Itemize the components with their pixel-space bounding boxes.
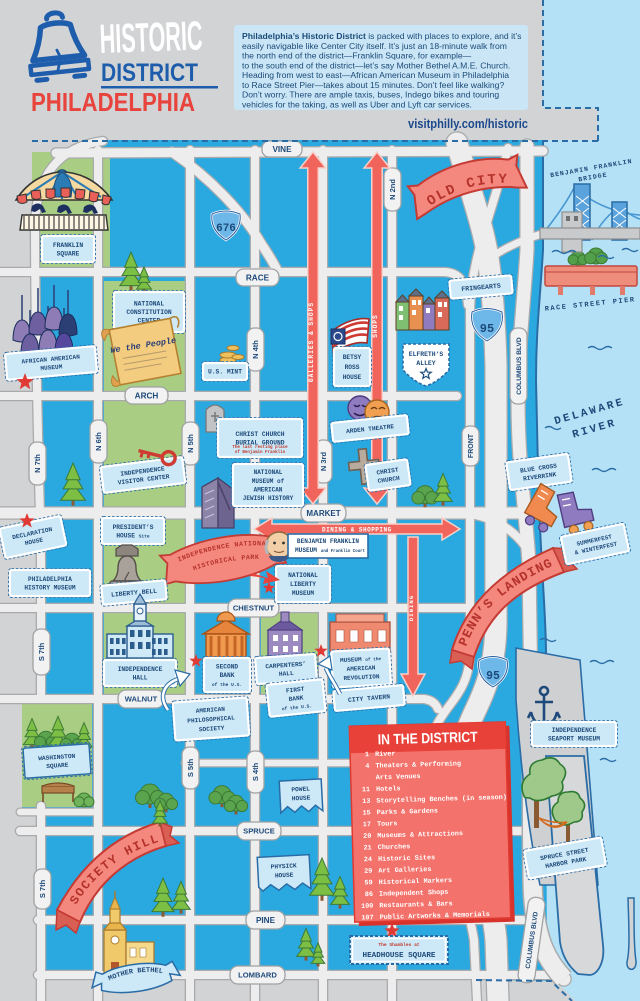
svg-text:HOUSE: HOUSE bbox=[343, 374, 362, 381]
svg-text:COLUMBUS BLVD: COLUMBUS BLVD bbox=[516, 337, 523, 395]
svg-text:Don’t worry. There are ample t: Don’t worry. There are ample taxis, buse… bbox=[242, 90, 499, 100]
svg-text:CHRIST CHURCH: CHRIST CHURCH bbox=[235, 431, 284, 438]
svg-text:of the U.S.: of the U.S. bbox=[212, 682, 242, 688]
svg-text:20: 20 bbox=[363, 833, 371, 841]
svg-text:17: 17 bbox=[363, 821, 371, 829]
svg-text:INDEPENDENCE: INDEPENDENCE bbox=[552, 727, 597, 734]
svg-text:HOUSE: HOUSE bbox=[292, 794, 311, 802]
svg-text:Historic Sites: Historic Sites bbox=[378, 854, 435, 864]
svg-text:The Shambles at: The Shambles at bbox=[378, 942, 420, 948]
svg-text:HOUSE: HOUSE bbox=[275, 871, 294, 879]
svg-text:MUSEUM of: MUSEUM of bbox=[252, 478, 285, 485]
svg-text:River: River bbox=[375, 750, 396, 759]
svg-text:MUSEUM: MUSEUM bbox=[292, 590, 315, 597]
svg-text:Hotels: Hotels bbox=[376, 785, 401, 794]
svg-text:FRANKLIN: FRANKLIN bbox=[53, 242, 83, 249]
svg-text:ALLEY: ALLEY bbox=[416, 360, 435, 367]
svg-text:N 5th: N 5th bbox=[186, 434, 195, 453]
svg-text:CONSTITUTION: CONSTITUTION bbox=[126, 309, 172, 316]
svg-text:S 5th: S 5th bbox=[186, 758, 195, 777]
svg-text:ELFRETH’S: ELFRETH’S bbox=[409, 351, 444, 358]
svg-text:easily navigable like Center C: easily navigable like Center City itself… bbox=[242, 41, 507, 51]
svg-text:N 3rd: N 3rd bbox=[319, 451, 328, 471]
svg-text:21: 21 bbox=[363, 844, 371, 852]
svg-text:SHOPS: SHOPS bbox=[372, 314, 379, 338]
svg-text:DISTRICT: DISTRICT bbox=[101, 59, 198, 87]
svg-text:the north end of the district—: the north end of the district—Franklin S… bbox=[242, 51, 472, 61]
svg-text:Churches: Churches bbox=[378, 843, 411, 852]
svg-text:MARKET: MARKET bbox=[306, 509, 340, 518]
svg-text:N 6th: N 6th bbox=[94, 432, 103, 451]
svg-text:VINE: VINE bbox=[272, 145, 292, 154]
svg-text:N 4th: N 4th bbox=[251, 340, 260, 359]
svg-text:INDEPENDENCE: INDEPENDENCE bbox=[118, 666, 163, 673]
svg-text:to Race Street Pier—takes abou: to Race Street Pier—takes about 15 minut… bbox=[242, 80, 504, 90]
svg-text:ROSS: ROSS bbox=[345, 364, 360, 371]
svg-text:107: 107 bbox=[361, 914, 373, 922]
svg-text:LIBERTY: LIBERTY bbox=[290, 581, 316, 588]
svg-text:13: 13 bbox=[362, 798, 370, 806]
svg-text:PHYSICK: PHYSICK bbox=[271, 862, 298, 870]
svg-text:NATIONAL: NATIONAL bbox=[288, 572, 318, 579]
svg-text:NATIONAL: NATIONAL bbox=[254, 469, 283, 476]
svg-text:PHILADELPHIA: PHILADELPHIA bbox=[28, 576, 72, 583]
svg-text:BENJAMIN FRANKLIN: BENJAMIN FRANKLIN bbox=[297, 538, 360, 545]
svg-text:ARCH: ARCH bbox=[135, 391, 159, 400]
svg-text:SPRUCE: SPRUCE bbox=[243, 827, 275, 836]
svg-text:FRONT: FRONT bbox=[468, 433, 475, 458]
svg-text:to the south end of the distri: to the south end of the district—let’s s… bbox=[242, 60, 510, 70]
svg-text:DINING & SHOPPING: DINING & SHOPPING bbox=[322, 527, 392, 534]
svg-text:SEAPORT MUSEUM: SEAPORT MUSEUM bbox=[548, 735, 600, 742]
svg-text:SQUARE: SQUARE bbox=[57, 251, 80, 258]
svg-text:CHESTNUT: CHESTNUT bbox=[233, 604, 275, 613]
svg-text:LOMBARD: LOMBARD bbox=[238, 971, 277, 980]
svg-text:The last resting place: The last resting place bbox=[232, 445, 288, 450]
svg-text:S 7th: S 7th bbox=[37, 642, 46, 661]
svg-text:HEADHOUSE SQUARE: HEADHOUSE SQUARE bbox=[363, 952, 436, 960]
svg-text:visitphilly.com/historic: visitphilly.com/historic bbox=[408, 117, 528, 131]
svg-text:S 7th: S 7th bbox=[38, 879, 47, 898]
svg-text:WALNUT: WALNUT bbox=[125, 695, 158, 704]
svg-text:N 2nd: N 2nd bbox=[388, 179, 397, 200]
svg-text:SECOND: SECOND bbox=[216, 663, 239, 670]
svg-text:HALL: HALL bbox=[133, 674, 148, 681]
svg-text:95: 95 bbox=[480, 322, 494, 336]
svg-text:MUSEUM: MUSEUM bbox=[295, 547, 317, 554]
svg-text:vehicles for the taking, as we: vehicles for the taking, as well as Uber… bbox=[242, 99, 472, 109]
svg-text:HOUSE Site: HOUSE Site bbox=[116, 532, 150, 539]
svg-text:Art Galleries: Art Galleries bbox=[378, 866, 431, 875]
svg-text:1: 1 bbox=[365, 751, 369, 759]
svg-text:HALL: HALL bbox=[279, 670, 295, 678]
svg-text:BETSY: BETSY bbox=[343, 354, 362, 361]
svg-text:AMERICAN: AMERICAN bbox=[254, 486, 283, 493]
svg-text:11: 11 bbox=[362, 786, 370, 794]
svg-text:95: 95 bbox=[486, 670, 500, 683]
svg-text:S 4th: S 4th bbox=[251, 762, 260, 781]
svg-text:PINE: PINE bbox=[256, 916, 276, 925]
svg-text:86: 86 bbox=[365, 891, 373, 899]
svg-text:Arts Venues: Arts Venues bbox=[376, 773, 421, 782]
svg-text:HISTORY MUSEUM: HISTORY MUSEUM bbox=[24, 584, 76, 591]
svg-text:59: 59 bbox=[364, 879, 372, 887]
svg-text:GALLERIES & SHOPS: GALLERIES & SHOPS bbox=[308, 302, 315, 382]
svg-text:Tours: Tours bbox=[377, 820, 398, 829]
svg-text:100: 100 bbox=[361, 903, 373, 911]
svg-text:N 7th: N 7th bbox=[33, 454, 42, 473]
svg-text:BANK: BANK bbox=[220, 672, 235, 679]
svg-text:U.S. MINT: U.S. MINT bbox=[208, 369, 242, 376]
svg-text:4: 4 bbox=[365, 763, 369, 771]
svg-text:NATIONAL: NATIONAL bbox=[134, 301, 164, 308]
svg-text:POWEL: POWEL bbox=[291, 785, 310, 793]
svg-text:29: 29 bbox=[364, 868, 372, 876]
svg-text:Parks & Gardens: Parks & Gardens bbox=[377, 808, 438, 818]
svg-text:PHILADELPHIA: PHILADELPHIA bbox=[31, 87, 195, 117]
svg-text:15: 15 bbox=[362, 809, 370, 817]
svg-text:Philadelphia’s Historic Distri: Philadelphia’s Historic District is pack… bbox=[242, 31, 521, 41]
svg-text:HISTORIC: HISTORIC bbox=[99, 12, 204, 62]
svg-text:JEWISH HISTORY: JEWISH HISTORY bbox=[243, 495, 294, 502]
svg-text:IN THE DISTRICT: IN THE DISTRICT bbox=[377, 730, 478, 749]
svg-text:24: 24 bbox=[364, 856, 372, 864]
svg-text:and Franklin Court: and Franklin Court bbox=[321, 549, 366, 554]
svg-text:PRESIDENT’S: PRESIDENT’S bbox=[113, 524, 154, 531]
svg-text:676: 676 bbox=[216, 223, 236, 235]
svg-text:RACE: RACE bbox=[246, 273, 270, 282]
svg-text:Heading from west to east—Afri: Heading from west to east—African Americ… bbox=[242, 70, 509, 80]
svg-text:DINING: DINING bbox=[408, 595, 415, 621]
svg-text:of Benjamin Franklin: of Benjamin Franklin bbox=[235, 450, 286, 455]
